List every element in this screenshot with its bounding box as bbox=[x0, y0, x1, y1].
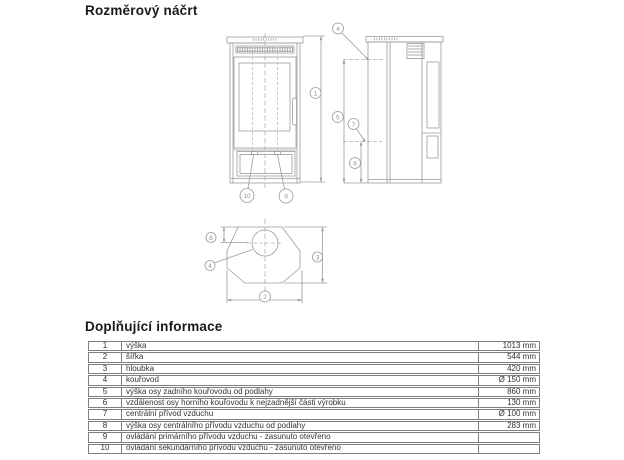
row-value: 860 mm bbox=[478, 388, 539, 396]
row-value: Ø 100 mm bbox=[478, 410, 539, 418]
callout-2: 2 bbox=[260, 291, 271, 302]
side-body bbox=[368, 42, 441, 183]
callout-4-top: 4 bbox=[205, 261, 215, 271]
svg-text:4: 4 bbox=[208, 263, 212, 270]
table-row: 7 centrální přívod vzduchu Ø 100 mm bbox=[88, 409, 540, 419]
row-label: výška osy zadního kouřovodu od podlahy bbox=[122, 388, 478, 397]
svg-text:6: 6 bbox=[209, 235, 213, 242]
callout-1: 1 bbox=[310, 88, 321, 99]
door-handle bbox=[293, 98, 297, 125]
row-label: vzdálenost osy horního kouřovodu k nejza… bbox=[122, 399, 478, 408]
top-view bbox=[214, 219, 327, 303]
row-label: výška bbox=[122, 342, 478, 351]
table-row: 4 kouřovod Ø 150 mm bbox=[88, 375, 540, 385]
table-row: 6 vzdálenost osy horního kouřovodu k nej… bbox=[88, 398, 540, 408]
info-table: 1 výška 1013 mm 2 šířka 544 mm 3 hloubka… bbox=[88, 341, 540, 455]
table-row: 8 výška osy centrálního přívodu vzduchu … bbox=[88, 421, 540, 431]
row-number: 10 bbox=[89, 445, 122, 453]
row-label: centrální přívod vzduchu bbox=[122, 410, 478, 419]
top-flue-leader bbox=[214, 250, 253, 264]
table-row: 5 výška osy zadního kouřovodu od podlahy… bbox=[88, 387, 540, 397]
row-value bbox=[478, 433, 539, 441]
row-number: 5 bbox=[89, 388, 122, 396]
svg-text:1: 1 bbox=[314, 90, 318, 97]
row-value: 1013 mm bbox=[478, 342, 539, 350]
callout-3: 3 bbox=[313, 252, 323, 262]
info-section-title: Doplňující informace bbox=[85, 319, 223, 334]
primary-air-control bbox=[252, 152, 258, 155]
side-top-plate bbox=[366, 37, 443, 43]
front-view bbox=[227, 33, 325, 189]
svg-text:8: 8 bbox=[353, 160, 357, 167]
side-glass bbox=[427, 62, 439, 128]
row-label: šířka bbox=[122, 353, 478, 362]
row-value: 420 mm bbox=[478, 365, 539, 373]
dimension-height bbox=[301, 36, 325, 182]
row-number: 8 bbox=[89, 422, 122, 430]
row-value: 130 mm bbox=[478, 399, 539, 407]
callout-7: 7 bbox=[348, 119, 359, 130]
row-label: výška osy centrálního přívodu vzduchu od… bbox=[122, 422, 478, 431]
front-bottom-panel bbox=[237, 152, 295, 177]
callout-5: 5 bbox=[332, 112, 343, 123]
table-row: 1 výška 1013 mm bbox=[88, 341, 540, 351]
row-value: 544 mm bbox=[478, 353, 539, 361]
row-number: 4 bbox=[89, 376, 122, 384]
svg-text:7: 7 bbox=[352, 121, 356, 128]
row-value: 283 mm bbox=[478, 422, 539, 430]
callout-6: 6 bbox=[206, 233, 216, 243]
table-row: 9 ovládání primárního přívodu vzduchu - … bbox=[88, 432, 540, 442]
secondary-air-control bbox=[275, 152, 281, 155]
row-value bbox=[478, 445, 539, 453]
row-number: 3 bbox=[89, 365, 122, 373]
svg-text:9: 9 bbox=[284, 193, 288, 200]
callout-9: 9 bbox=[279, 189, 293, 203]
air-inlet-leader bbox=[357, 129, 365, 140]
front-glass bbox=[239, 63, 290, 131]
callout-8: 8 bbox=[350, 158, 361, 169]
row-number: 1 bbox=[89, 342, 122, 350]
row-number: 6 bbox=[89, 399, 122, 407]
table-row: 10 ovládání sekundárního přívodu vzduchu… bbox=[88, 444, 540, 454]
callout-10: 10 bbox=[240, 189, 254, 203]
flue-leader bbox=[342, 33, 367, 59]
dimensional-drawing: 1 10 9 4 5 7 8 bbox=[0, 0, 624, 318]
svg-text:4: 4 bbox=[336, 26, 340, 33]
row-label: ovládání sekundárního přívodu vzduchu - … bbox=[122, 444, 478, 453]
row-number: 2 bbox=[89, 353, 122, 361]
row-label: ovládání primárního přívodu vzduchu - za… bbox=[122, 433, 478, 442]
row-value: Ø 150 mm bbox=[478, 376, 539, 384]
callout-4-side: 4 bbox=[333, 23, 344, 34]
row-label: kouřovod bbox=[122, 376, 478, 385]
table-row: 3 hloubka 420 mm bbox=[88, 364, 540, 374]
row-label: hloubka bbox=[122, 365, 478, 374]
table-row: 2 šířka 544 mm bbox=[88, 352, 540, 362]
svg-text:10: 10 bbox=[243, 193, 251, 200]
svg-text:2: 2 bbox=[263, 294, 267, 301]
row-number: 9 bbox=[89, 433, 122, 441]
svg-text:3: 3 bbox=[316, 254, 320, 261]
svg-text:5: 5 bbox=[336, 114, 340, 121]
row-number: 7 bbox=[89, 410, 122, 418]
